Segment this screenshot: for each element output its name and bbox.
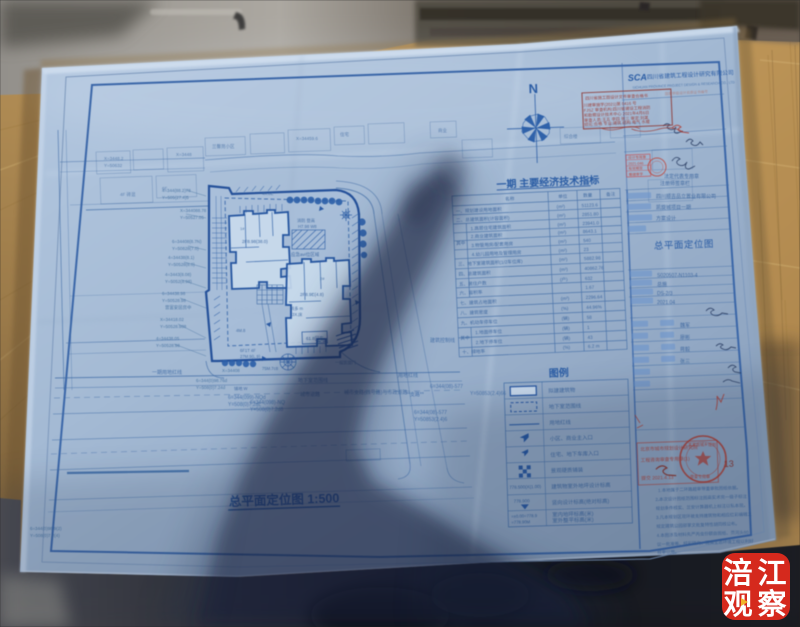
svg-text:涪: 涪 [723, 556, 752, 590]
svg-text:江: 江 [757, 557, 786, 590]
svg-text:观: 观 [723, 589, 752, 621]
svg-text:察: 察 [757, 588, 787, 621]
